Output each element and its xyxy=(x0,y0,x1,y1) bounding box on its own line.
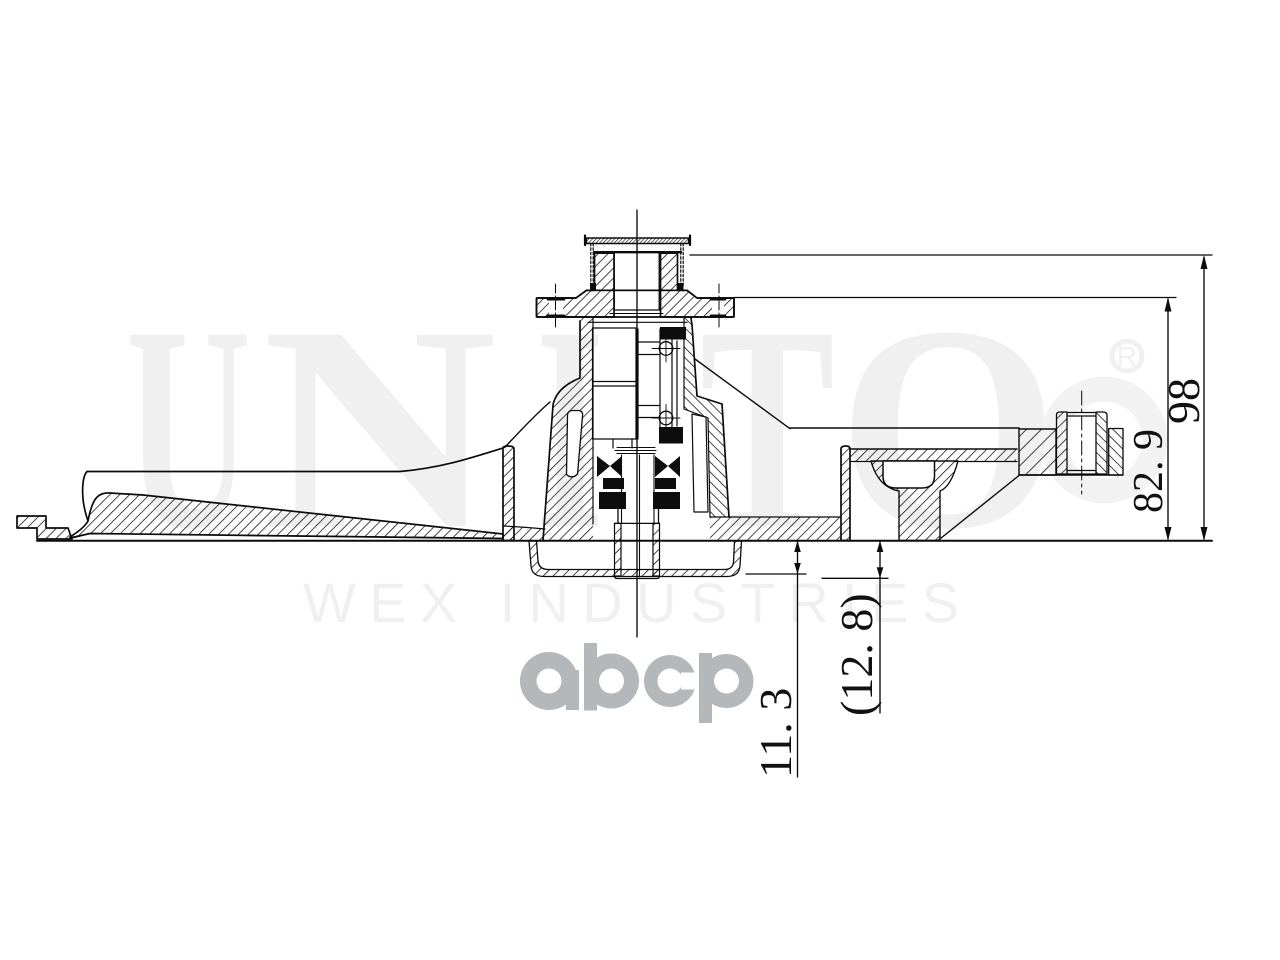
svg-text:98: 98 xyxy=(1158,378,1209,424)
svg-text:(12. 8): (12. 8) xyxy=(831,593,882,716)
svg-text:82. 9: 82. 9 xyxy=(1126,429,1172,513)
svg-text:11. 3: 11. 3 xyxy=(750,688,801,778)
svg-text:R: R xyxy=(1117,341,1137,372)
